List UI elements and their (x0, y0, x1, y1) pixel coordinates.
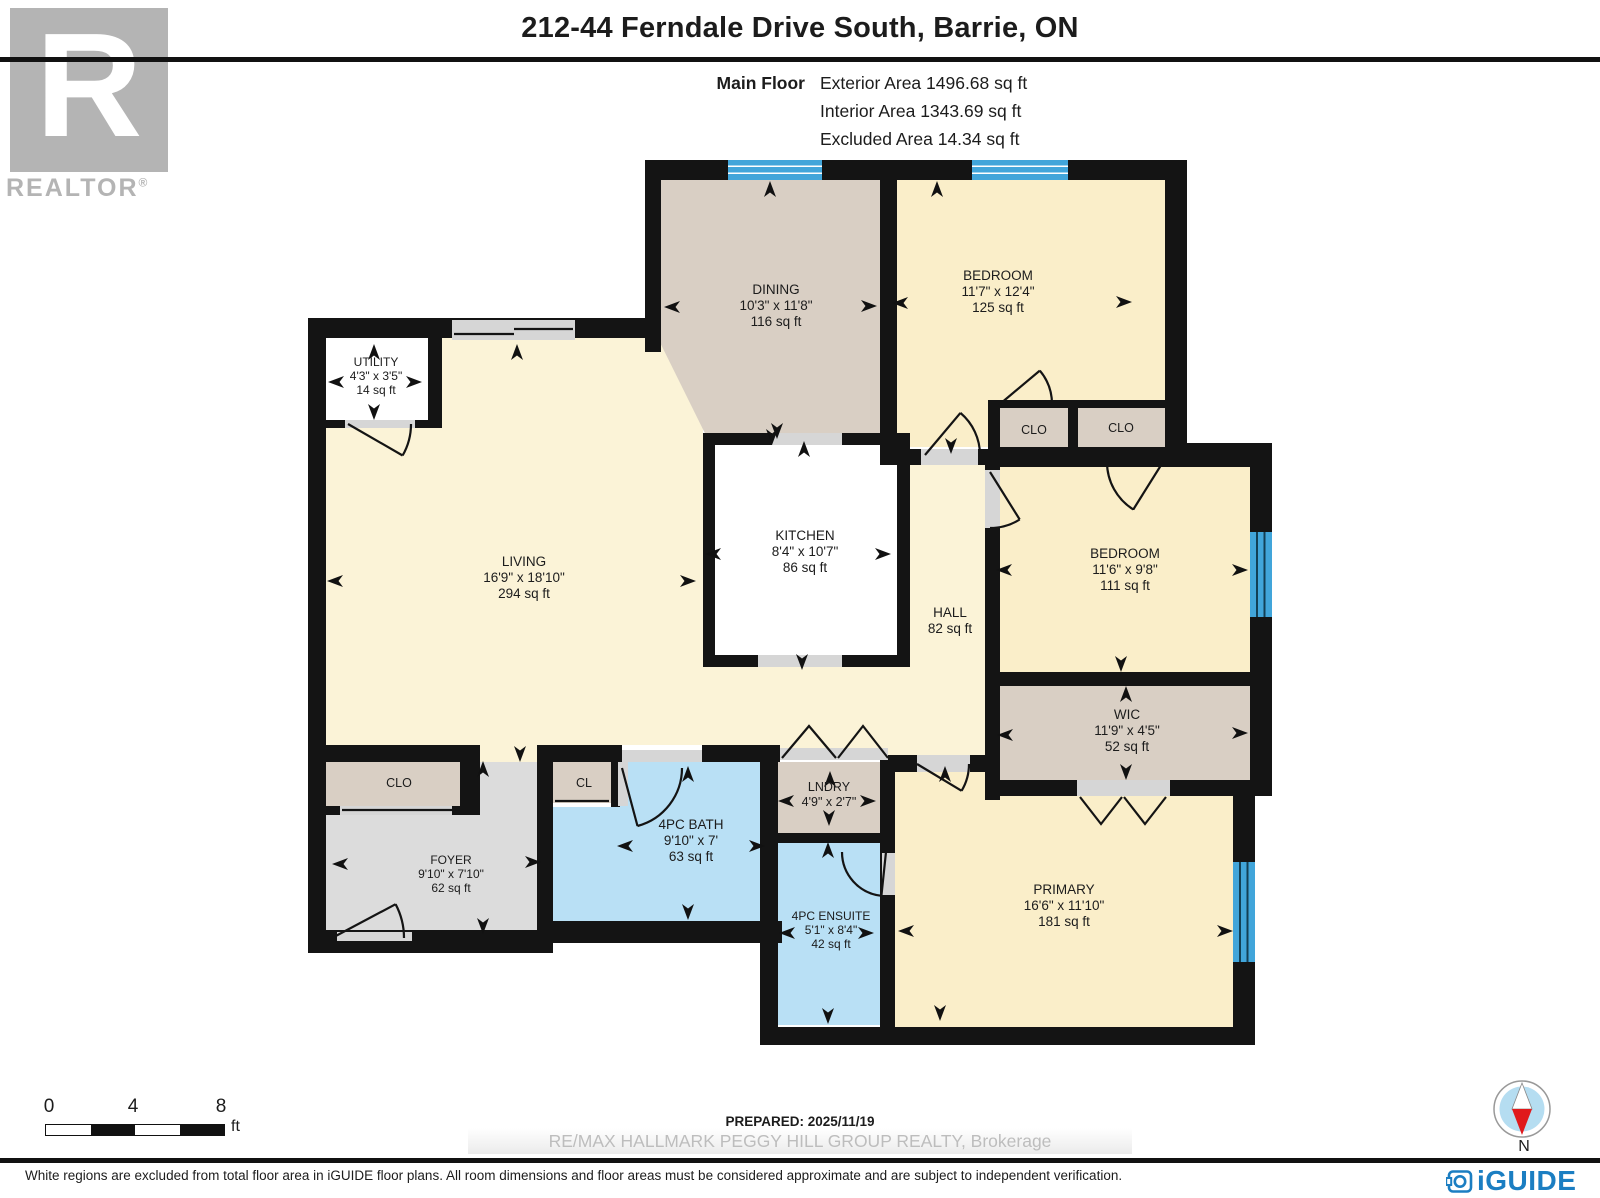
door-opening (985, 470, 1000, 528)
wall-segment (428, 336, 442, 428)
door-opening (622, 750, 702, 762)
floor-hall (703, 667, 985, 755)
door-opening (882, 853, 895, 895)
room-label-kitchen: KITCHEN8'4" x 10'7"86 sq ft (772, 528, 839, 576)
prepared-date: PREPARED: 2025/11/19 (0, 1114, 1600, 1129)
room-label-utility: UTILITY4'3" x 3'5"14 sq ft (350, 355, 402, 397)
door-opening (921, 449, 978, 465)
room-label-living: LIVING16'9" x 18'10"294 sq ft (483, 554, 565, 602)
wall-segment (1250, 443, 1272, 796)
closet-label-3: CLO (386, 776, 412, 790)
wall-segment (537, 921, 782, 943)
closet-label-4: CL (576, 776, 592, 790)
wall-segment (645, 160, 1187, 180)
iguide-logo: iGUIDE (1446, 1165, 1576, 1197)
wall-segment (760, 745, 778, 1045)
room-label-bath: 4PC BATH9'10" x 7'63 sq ft (658, 817, 723, 865)
room-label-ensuite: 4PC ENSUITE5'1" x 8'4"42 sq ft (792, 909, 871, 951)
room-label-wic: WIC11'9" x 4'5"52 sq ft (1094, 707, 1160, 755)
door-opening (340, 806, 452, 815)
room-label-bedroom-1: BEDROOM11'7" x 12'4"125 sq ft (961, 268, 1034, 316)
floor-living (480, 745, 537, 762)
wall-segment (1068, 400, 1078, 455)
room-label-bedroom-2: BEDROOM11'6" x 9'8"111 sq ft (1090, 546, 1160, 594)
wall-segment (460, 745, 480, 815)
floor-plan-page: R REALTOR® 212-44 Ferndale Drive South, … (0, 0, 1600, 1198)
iguide-camera-icon (1446, 1168, 1473, 1195)
brokerage-watermark: RE/MAX HALLMARK PEGGY HILL GROUP REALTY,… (468, 1128, 1132, 1154)
floor-bath (553, 807, 620, 921)
window (728, 160, 822, 180)
room-label-primary: PRIMARY16'6" x 11'10"181 sq ft (1024, 882, 1105, 930)
room-label-foyer: FOYER9'10" x 7'10"62 sq ft (418, 853, 484, 895)
door-opening (452, 320, 575, 340)
wall-segment (985, 672, 1272, 686)
closet-label-1: CLO (1021, 423, 1047, 437)
door-opening (345, 420, 415, 428)
wall-segment (760, 1027, 1255, 1045)
door-opening (618, 762, 628, 806)
wall-segment (308, 318, 326, 953)
floor-foyer (480, 762, 537, 815)
compass-north-label: N (1518, 1138, 1530, 1156)
compass-icon (1488, 1077, 1556, 1141)
door-opening (780, 748, 888, 760)
dim-arrow-r (875, 548, 891, 560)
window (972, 160, 1068, 180)
door-opening (1077, 780, 1170, 796)
window (1233, 862, 1255, 962)
wall-segment (703, 433, 715, 667)
disclaimer-text: White regions are excluded from total fl… (25, 1168, 1425, 1183)
wall-segment (537, 745, 553, 950)
room-label-dining: DINING10'3" x 11'8"116 sq ft (739, 282, 812, 330)
wall-segment (308, 745, 480, 762)
door-opening (337, 932, 412, 941)
wall-segment (1165, 160, 1187, 467)
wall-segment (897, 433, 910, 667)
wall-segment (988, 400, 1000, 455)
wall-segment (880, 160, 897, 465)
door-opening (917, 755, 970, 772)
floor-plan-drawing (0, 0, 1600, 1198)
room-label-laundry: LNDRY4'9" x 2'7" (802, 780, 857, 809)
room-label-hall: HALL82 sq ft (928, 605, 972, 637)
door-opening (772, 433, 842, 445)
window (1250, 532, 1272, 617)
footer-divider-line (0, 1158, 1600, 1163)
closet-label-2: CLO (1108, 421, 1134, 435)
iguide-logo-text: iGUIDE (1477, 1165, 1576, 1197)
wall-segment (778, 833, 880, 843)
wall-segment (970, 755, 990, 772)
